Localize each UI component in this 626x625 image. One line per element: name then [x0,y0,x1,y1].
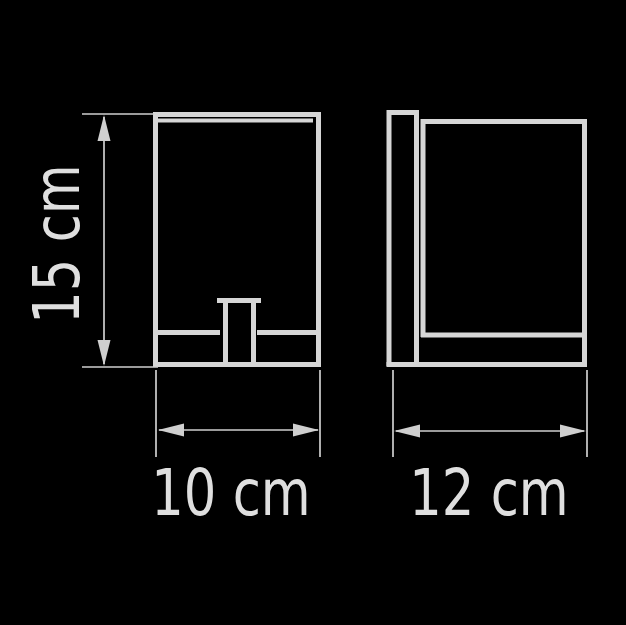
width-dimension-label: 10 cm [143,457,319,529]
height-dimension-label: 15 cm [21,156,93,332]
technical-drawing: 15 cm 10 cm 12 cm [0,0,626,625]
depth-dimension-label: 12 cm [401,457,577,529]
